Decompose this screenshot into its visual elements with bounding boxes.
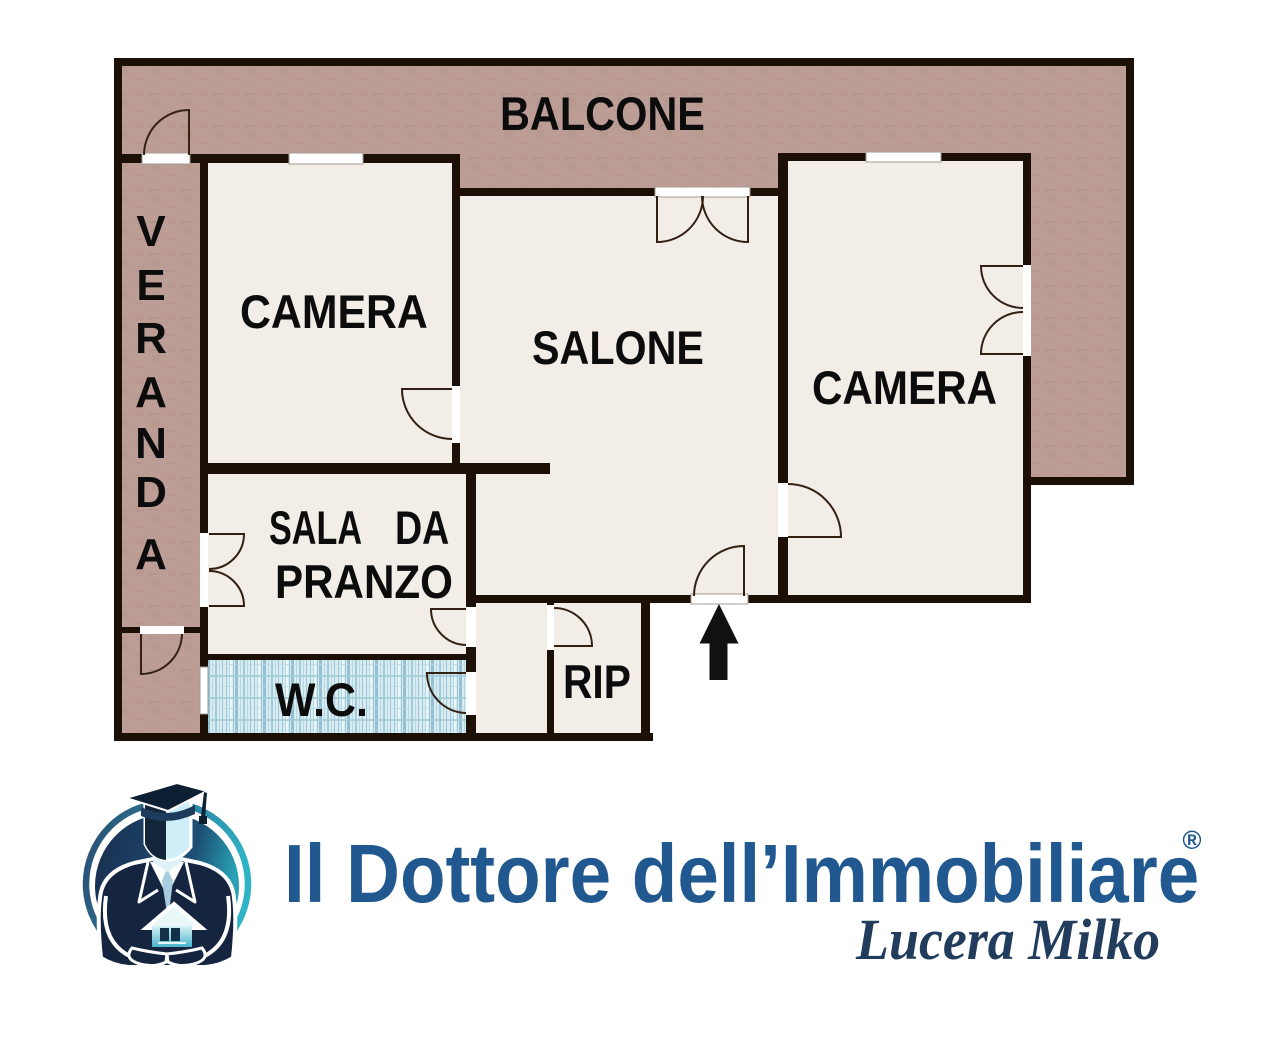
svg-text:Il Dottore dell’Immobiliare: Il Dottore dell’Immobiliare — [284, 827, 1199, 920]
svg-text:CAMERA: CAMERA — [240, 285, 428, 338]
svg-text:A: A — [135, 530, 167, 579]
svg-text:CAMERA: CAMERA — [812, 363, 997, 415]
svg-text:RIP: RIP — [563, 656, 631, 708]
svg-text:A: A — [135, 368, 167, 417]
svg-text:V: V — [136, 207, 166, 256]
svg-text:SALONE: SALONE — [532, 323, 704, 375]
svg-text:BALCONE: BALCONE — [500, 89, 705, 141]
svg-text:Lucera Milko: Lucera Milko — [855, 908, 1160, 972]
svg-text:W.C.: W.C. — [275, 673, 368, 726]
svg-text:N: N — [135, 419, 167, 468]
svg-text:®: ® — [1182, 825, 1201, 855]
svg-text:SALA: SALA — [269, 502, 362, 555]
svg-text:PRANZO: PRANZO — [275, 557, 453, 609]
svg-text:D: D — [135, 468, 167, 517]
svg-text:DA: DA — [395, 502, 449, 555]
svg-text:R: R — [135, 314, 167, 363]
svg-text:E: E — [136, 261, 165, 310]
